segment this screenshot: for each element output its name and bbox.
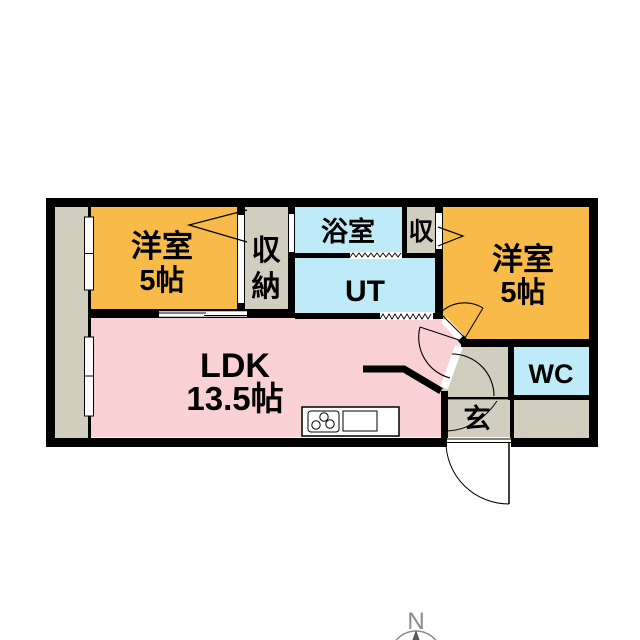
wall-hall-entrance bbox=[448, 397, 510, 400]
ldk-room bbox=[88, 316, 462, 437]
floor-plan-drawing: 洋室 5帖 収 納 浴室 収 UT 洋室 5帖 LDK 13.5帖 WC 玄 N bbox=[0, 0, 640, 640]
wall-left bbox=[46, 198, 55, 447]
closet-left-label-2: 納 bbox=[251, 269, 280, 303]
window-ldk bbox=[85, 337, 94, 416]
wall-bottom-left bbox=[46, 438, 447, 447]
entrance-label: 玄 bbox=[464, 403, 491, 434]
stove-icon bbox=[308, 411, 339, 432]
bedroom-left-size: 5帖 bbox=[139, 264, 184, 297]
folding-door-utility bbox=[380, 312, 433, 320]
floor-plan-canvas: 洋室 5帖 収 納 浴室 収 UT 洋室 5帖 LDK 13.5帖 WC 玄 N bbox=[0, 0, 640, 640]
front-door-arc bbox=[446, 442, 509, 504]
wall-hall-wc bbox=[508, 344, 514, 398]
wall-entrance-porch bbox=[510, 398, 514, 438]
window-bedroom-left bbox=[85, 217, 94, 290]
front-door bbox=[446, 438, 511, 504]
sink bbox=[343, 411, 377, 431]
balcony-strip bbox=[55, 207, 88, 438]
wall-top bbox=[46, 198, 598, 207]
compass-icon: N bbox=[390, 608, 442, 640]
bedroom-left-label: 洋室 bbox=[131, 229, 193, 264]
wall-bottom-right bbox=[511, 438, 598, 447]
wall-entrance-left bbox=[441, 391, 448, 438]
bedroom-right-label: 洋室 bbox=[492, 242, 554, 277]
wall-bath-closetright bbox=[402, 207, 407, 253]
ldk-size: 13.5帖 bbox=[186, 380, 283, 417]
wc-label: WC bbox=[529, 359, 574, 389]
closet-left-opening bbox=[238, 215, 244, 303]
porch-area bbox=[513, 400, 589, 438]
wall-wc-bottom bbox=[508, 395, 598, 400]
wall-right bbox=[589, 198, 598, 447]
closet-right-label: 収 bbox=[408, 218, 434, 246]
wall-bedroomright-bottom bbox=[461, 339, 598, 347]
sliding-door-bedroom-left bbox=[159, 311, 247, 318]
closet-left-back-slit bbox=[289, 214, 294, 252]
closet-right-opening bbox=[436, 213, 442, 249]
folding-door-bathroom bbox=[350, 252, 402, 259]
bedroom-right-size: 5帖 bbox=[500, 276, 545, 309]
kitchen-counter bbox=[302, 407, 399, 436]
utility-label: UT bbox=[345, 275, 385, 308]
closet-left-label-1: 収 bbox=[251, 234, 281, 267]
bathroom-label: 浴室 bbox=[321, 216, 375, 247]
